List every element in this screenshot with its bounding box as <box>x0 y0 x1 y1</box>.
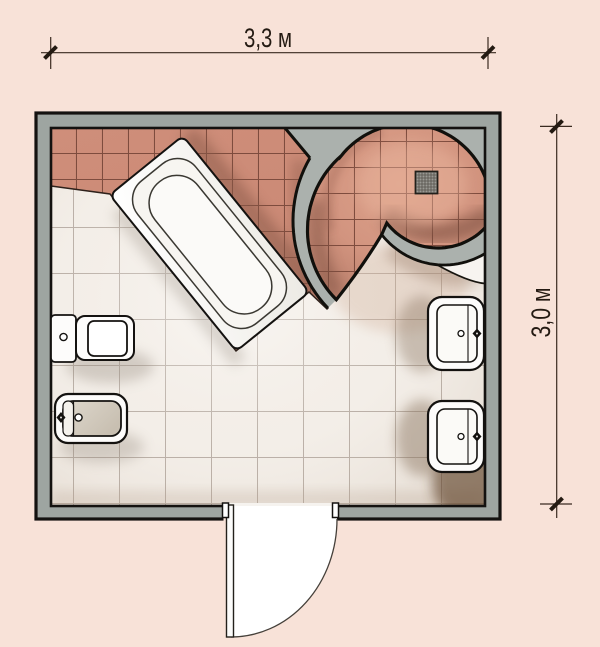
svg-text:3,0 м: 3,0 м <box>526 288 556 338</box>
svg-text:3,3 м: 3,3 м <box>244 23 292 53</box>
